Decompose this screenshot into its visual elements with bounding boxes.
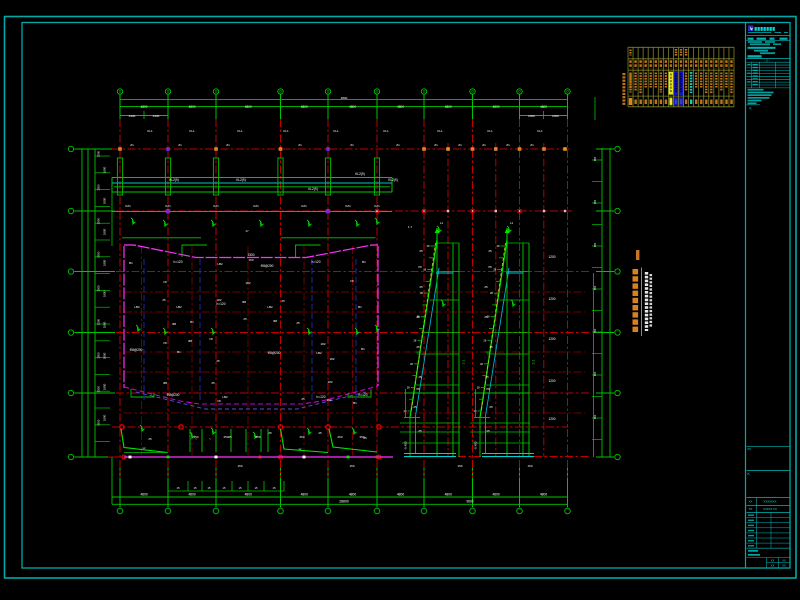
- svg-text:950: 950: [593, 242, 597, 247]
- svg-text:25: 25: [484, 285, 488, 289]
- svg-text:4800: 4800: [349, 105, 356, 109]
- svg-text:Z1: Z1: [530, 143, 534, 147]
- svg-text:25: 25: [268, 431, 272, 435]
- svg-text:P8: P8: [488, 265, 492, 269]
- svg-text:1800: 1800: [103, 290, 107, 297]
- svg-text:25: 25: [419, 249, 423, 253]
- svg-text:XX: XX: [771, 564, 775, 568]
- svg-text:950: 950: [593, 414, 597, 419]
- svg-text:25: 25: [419, 285, 423, 289]
- svg-text:4800: 4800: [245, 105, 252, 109]
- svg-text:25: 25: [418, 429, 422, 433]
- svg-text:Z1: Z1: [458, 143, 462, 147]
- svg-text:150: 150: [248, 258, 253, 262]
- svg-text:25: 25: [296, 321, 300, 325]
- svg-text:KL1: KL1: [147, 129, 153, 133]
- svg-text:2400: 2400: [129, 114, 136, 118]
- svg-text:15: 15: [273, 486, 276, 490]
- svg-text:KL1: KL1: [189, 129, 195, 133]
- svg-text:1500: 1500: [97, 218, 101, 225]
- svg-text:4800: 4800: [301, 492, 309, 496]
- svg-text:15: 15: [223, 486, 226, 490]
- svg-text:B1: B1: [190, 320, 194, 324]
- svg-text:xz: xz: [143, 446, 147, 450]
- svg-text:1800: 1800: [103, 197, 107, 204]
- svg-text:25: 25: [413, 405, 417, 409]
- svg-text:1800: 1800: [103, 383, 107, 390]
- svg-text:1800: 1800: [103, 321, 107, 328]
- svg-text:KL1: KL1: [537, 129, 543, 133]
- svg-text:1500: 1500: [97, 285, 101, 292]
- svg-text:1800: 1800: [103, 166, 107, 173]
- svg-text:250: 250: [255, 435, 260, 439]
- svg-text:1500: 1500: [97, 251, 101, 258]
- svg-text:h=120: h=120: [317, 395, 326, 399]
- svg-text:182: 182: [329, 357, 334, 361]
- svg-text:KL1: KL1: [383, 129, 389, 133]
- svg-text:950: 950: [593, 371, 597, 376]
- svg-text:182: 182: [326, 398, 331, 402]
- svg-text:Z1: Z1: [298, 143, 302, 147]
- svg-text:P8: P8: [416, 387, 420, 391]
- svg-text:150: 150: [349, 464, 354, 468]
- svg-text:1800: 1800: [103, 228, 107, 235]
- svg-text:250: 250: [337, 435, 342, 439]
- svg-text:4800: 4800: [540, 492, 548, 496]
- svg-text:XX: XX: [771, 559, 775, 563]
- svg-text:-0.450: -0.450: [474, 441, 478, 450]
- svg-text:150: 150: [237, 464, 242, 468]
- svg-text:25: 25: [228, 435, 232, 439]
- svg-text:h8: h8: [350, 279, 354, 283]
- svg-text:25: 25: [211, 381, 215, 385]
- svg-text:Z1: Z1: [226, 143, 230, 147]
- svg-text:Z1: Z1: [434, 143, 438, 147]
- svg-text:LB2: LB2: [222, 395, 228, 399]
- svg-text:1200: 1200: [548, 417, 555, 421]
- svg-text:h=120: h=120: [359, 393, 368, 397]
- svg-text:25: 25: [416, 345, 420, 349]
- svg-text:h=120: h=120: [217, 302, 226, 306]
- svg-text:B1: B1: [361, 347, 365, 351]
- svg-text:KL1: KL1: [237, 129, 243, 133]
- svg-text:B1: B1: [177, 350, 181, 354]
- svg-text:Z1: Z1: [350, 143, 354, 147]
- svg-text:Φ8: Φ8: [172, 322, 176, 326]
- svg-text:KL1: KL1: [437, 129, 443, 133]
- svg-text:25: 25: [216, 359, 220, 363]
- svg-text:950: 950: [593, 156, 597, 161]
- svg-text:4800: 4800: [492, 105, 499, 109]
- svg-text:Φ8: Φ8: [163, 381, 167, 385]
- svg-text:KZ1: KZ1: [213, 204, 219, 208]
- svg-text:182: 182: [245, 281, 250, 285]
- svg-text:KL2(9): KL2(9): [388, 178, 398, 182]
- svg-text:KL1: KL1: [487, 129, 493, 133]
- svg-text:15: 15: [194, 486, 197, 490]
- svg-text:KZ1: KZ1: [125, 204, 131, 208]
- svg-text:3300: 3300: [247, 253, 254, 257]
- svg-text:Z1: Z1: [506, 143, 510, 147]
- svg-text:XX: XX: [749, 500, 753, 504]
- svg-text:Z1: Z1: [130, 143, 134, 147]
- svg-text:2400: 2400: [552, 114, 559, 118]
- svg-text:Φ8@200: Φ8@200: [268, 351, 281, 355]
- svg-text:4800: 4800: [397, 492, 405, 496]
- svg-text:1200: 1200: [548, 337, 555, 341]
- svg-text:4800: 4800: [301, 105, 308, 109]
- svg-text:1-1: 1-1: [462, 359, 466, 364]
- svg-text:2400: 2400: [153, 114, 160, 118]
- svg-text:KZ1: KZ1: [374, 204, 380, 208]
- svg-text:250: 250: [223, 435, 228, 439]
- svg-text:15: 15: [208, 486, 211, 490]
- svg-text:KL2(9): KL2(9): [236, 178, 246, 182]
- svg-text:182: 182: [327, 380, 332, 384]
- svg-text:1200: 1200: [548, 379, 555, 383]
- svg-text:Z1: Z1: [482, 143, 486, 147]
- svg-text:25: 25: [489, 405, 493, 409]
- svg-text:950: 950: [593, 199, 597, 204]
- svg-text:B1: B1: [353, 401, 357, 405]
- svg-text:4800: 4800: [188, 105, 195, 109]
- svg-text:4800: 4800: [445, 105, 452, 109]
- svg-text:B1: B1: [362, 260, 366, 264]
- svg-text:-0.450: -0.450: [404, 441, 408, 450]
- svg-text:P8: P8: [418, 265, 422, 269]
- svg-text:150: 150: [527, 464, 532, 468]
- svg-text:xz: xz: [299, 447, 303, 451]
- svg-text:KL1: KL1: [283, 129, 289, 133]
- svg-text:25: 25: [243, 317, 247, 321]
- svg-text:1500: 1500: [97, 419, 101, 426]
- svg-text:KZ1: KZ1: [301, 204, 307, 208]
- svg-text:Φ8@200: Φ8@200: [167, 393, 180, 397]
- svg-text:Φ8@200: Φ8@200: [261, 264, 274, 268]
- svg-text:15: 15: [255, 486, 258, 490]
- svg-text:25: 25: [418, 375, 422, 379]
- svg-text:2-2: 2-2: [532, 359, 536, 364]
- svg-text:9600: 9600: [466, 500, 473, 504]
- svg-text:Z1: Z1: [396, 143, 400, 147]
- svg-text:1200: 1200: [548, 255, 555, 259]
- svg-text:h=120: h=120: [312, 260, 321, 264]
- svg-text:h8: h8: [209, 337, 213, 341]
- svg-text:250: 250: [359, 435, 364, 439]
- svg-text:25: 25: [162, 298, 166, 302]
- svg-text:4800: 4800: [188, 492, 196, 496]
- svg-text:1500: 1500: [97, 318, 101, 325]
- svg-text:XXXXXXX: XXXXXXX: [763, 500, 776, 504]
- svg-text:KL2(9): KL2(9): [169, 178, 179, 182]
- svg-text:4800: 4800: [140, 105, 147, 109]
- svg-text:P8: P8: [486, 387, 490, 391]
- svg-text:1800: 1800: [103, 352, 107, 359]
- svg-text:B1: B1: [129, 261, 133, 265]
- svg-text:4800: 4800: [341, 96, 348, 100]
- svg-text:4800: 4800: [492, 492, 500, 496]
- svg-text:250: 250: [299, 435, 304, 439]
- svg-text:1800: 1800: [103, 414, 107, 421]
- svg-text:17: 17: [245, 229, 249, 233]
- svg-text:25: 25: [281, 299, 285, 303]
- svg-text:XXXXX XX: XXXXX XX: [763, 507, 777, 511]
- svg-text:Φ8: Φ8: [273, 319, 277, 323]
- svg-text:K.: K.: [750, 107, 753, 111]
- svg-text:25: 25: [301, 397, 305, 401]
- svg-text:15: 15: [239, 486, 242, 490]
- svg-text:1800: 1800: [103, 259, 107, 266]
- svg-text:LB2: LB2: [176, 305, 182, 309]
- svg-text:KZ1: KZ1: [165, 204, 171, 208]
- svg-text:LB2: LB2: [316, 351, 322, 355]
- svg-text:- 2 -: - 2 -: [764, 58, 769, 62]
- svg-text:XX: XX: [749, 507, 753, 511]
- svg-text:1500: 1500: [97, 184, 101, 191]
- svg-text:25: 25: [416, 315, 420, 319]
- svg-text:25: 25: [148, 437, 152, 441]
- svg-text:LB2: LB2: [267, 305, 273, 309]
- svg-text:h8: h8: [163, 341, 167, 345]
- svg-text:4800: 4800: [349, 492, 357, 496]
- svg-text:Φ8: Φ8: [242, 300, 246, 304]
- svg-text:KZ1: KZ1: [253, 204, 259, 208]
- svg-text:LB2: LB2: [217, 262, 223, 266]
- svg-text:15: 15: [177, 486, 180, 490]
- svg-text:LB2: LB2: [134, 305, 140, 309]
- svg-text:KZ1: KZ1: [345, 204, 351, 208]
- svg-text:1500: 1500: [97, 352, 101, 359]
- svg-text:KL2(9): KL2(9): [355, 172, 365, 176]
- svg-text:4800: 4800: [140, 492, 148, 496]
- svg-text:950: 950: [593, 328, 597, 333]
- svg-text:h8: h8: [163, 280, 167, 284]
- svg-text:4800: 4800: [445, 492, 453, 496]
- svg-text:h8: h8: [217, 399, 221, 403]
- svg-text:25: 25: [318, 431, 322, 435]
- svg-text:25: 25: [486, 429, 490, 433]
- svg-text:Z1: Z1: [178, 143, 182, 147]
- svg-text:4800: 4800: [245, 492, 253, 496]
- svg-text:950: 950: [593, 285, 597, 290]
- svg-text:25: 25: [488, 249, 492, 253]
- svg-text:182: 182: [216, 298, 221, 302]
- svg-text:1.7: 1.7: [408, 225, 413, 229]
- svg-text:1200: 1200: [548, 297, 555, 301]
- svg-text:XX: XX: [782, 564, 786, 568]
- svg-text:L1: L1: [440, 221, 444, 225]
- svg-text:25: 25: [484, 315, 488, 319]
- svg-text:150: 150: [457, 464, 462, 468]
- svg-text:25: 25: [485, 375, 489, 379]
- svg-text:XX: XX: [782, 559, 786, 563]
- svg-text:4800: 4800: [540, 105, 547, 109]
- svg-text:2400: 2400: [528, 114, 535, 118]
- svg-text:B1: B1: [358, 305, 362, 309]
- svg-text:1500: 1500: [97, 386, 101, 393]
- svg-text:Φ8: Φ8: [188, 339, 192, 343]
- svg-text:28800: 28800: [339, 500, 349, 504]
- svg-text:KL2(9): KL2(9): [308, 187, 318, 191]
- svg-text:25: 25: [489, 345, 493, 349]
- svg-text:h=120: h=120: [174, 260, 183, 264]
- svg-text:KL1: KL1: [333, 129, 339, 133]
- svg-text:182: 182: [320, 342, 325, 346]
- svg-text:1500: 1500: [97, 150, 101, 157]
- svg-text:XX: XX: [747, 447, 751, 451]
- svg-text:4800: 4800: [397, 105, 404, 109]
- svg-text:L1: L1: [510, 221, 514, 225]
- svg-text:Φ8@200: Φ8@200: [130, 348, 143, 352]
